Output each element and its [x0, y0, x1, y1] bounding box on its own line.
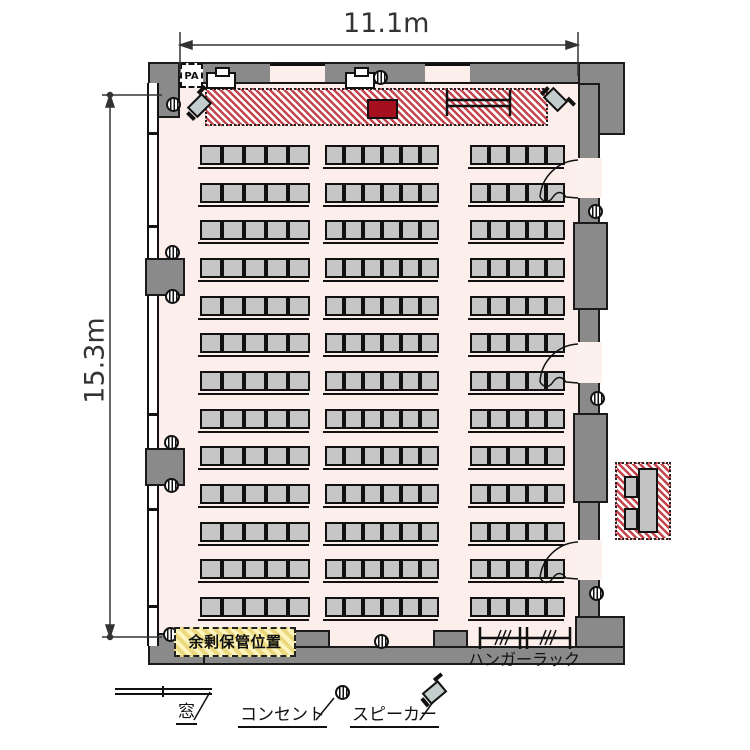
door-opening-3 [576, 540, 602, 580]
pillar-right-2 [573, 413, 608, 503]
window-wall-left [147, 83, 159, 646]
height-dimension-label: 15.3m [80, 317, 111, 403]
floor-plan: PA 11.1m 15.3m 余剰保管位置 ハンガーラック 窓 コンセント スピ… [0, 0, 750, 750]
outlet-icon [373, 70, 388, 85]
window-divider [147, 508, 159, 511]
window-divider [147, 605, 159, 608]
outlet-icon [374, 634, 389, 649]
wall-top-opening-2 [425, 63, 470, 83]
wall-top-opening-1 [270, 63, 325, 83]
reception-table [638, 468, 658, 533]
wall-bottom-pilaster-1 [292, 630, 330, 648]
outlet-icon [588, 204, 603, 219]
legend-speaker-label: スピーカー [350, 700, 439, 728]
legend-window-label: 窓 [176, 697, 197, 725]
outlet-icon [590, 391, 605, 406]
window-divider [147, 132, 159, 135]
outlet-icon [166, 97, 181, 112]
amp-console-icon [206, 72, 236, 89]
pa-rack: PA [180, 63, 203, 88]
legend-window-icon [115, 686, 212, 697]
window-divider [147, 225, 159, 228]
legend-outlet-label: コンセント [238, 700, 327, 728]
outlet-icon [164, 478, 179, 493]
door-opening-1 [576, 158, 602, 198]
podium [367, 99, 398, 119]
reception-chair [624, 508, 638, 530]
storage-label: 余剰保管位置 [174, 627, 296, 657]
pillar-right-1 [573, 222, 608, 310]
outlet-icon [589, 586, 604, 601]
window-divider [147, 413, 159, 416]
hanger-rack-label: ハンガーラック [468, 646, 580, 670]
width-dimension-label: 11.1m [343, 8, 429, 39]
room-interior [158, 83, 578, 646]
door-opening-2 [576, 342, 602, 383]
outlet-icon [165, 289, 180, 304]
outlet-icon [164, 435, 179, 450]
pillar-left-1 [145, 258, 185, 296]
outlet-icon [335, 685, 350, 700]
reception-chair [624, 476, 638, 498]
wall-bottom-pilaster-2 [433, 630, 468, 648]
outlet-icon [165, 245, 180, 260]
amp-console-icon [345, 72, 375, 89]
